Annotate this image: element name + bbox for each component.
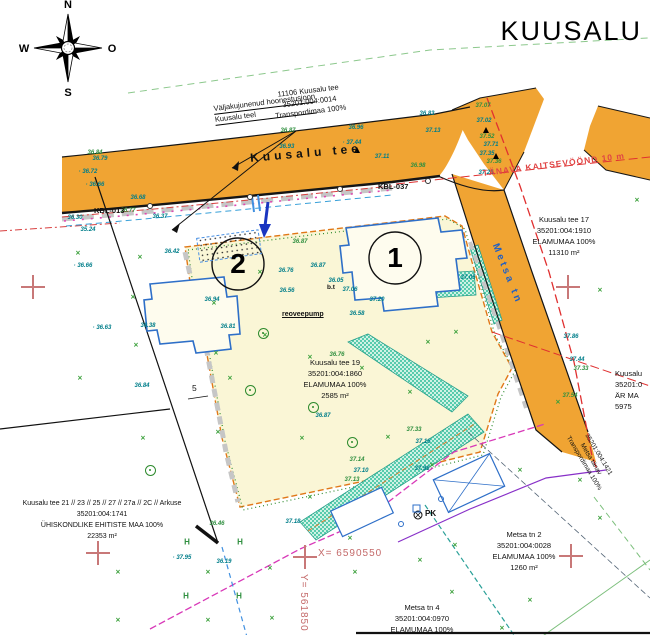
pole-icon <box>247 194 253 200</box>
spot-height: 36.96 <box>348 125 363 131</box>
dim5-line <box>188 396 208 399</box>
green-boundary-1 <box>594 497 650 570</box>
grid-cross <box>86 541 110 565</box>
parcel-label-metsa-2: Metsa tn 2 35201:004:0028 ELAMUMAA 100% … <box>464 529 584 573</box>
spot-height: 36.83 <box>419 111 434 117</box>
spot-height: 37.14 <box>349 457 364 463</box>
compass-rose: N S W O <box>19 0 117 99</box>
spot-height: 37.11 <box>375 154 390 160</box>
parcel-line: 1260 m² <box>464 562 584 573</box>
spot-height: · 36.63 <box>93 325 112 331</box>
site-plan-kuusalu: N S W O 36.7936.84· 36.72· 36.6636.6836.… <box>0 0 650 635</box>
spot-height: 37.98 <box>414 466 429 472</box>
grass-mark: × <box>500 624 505 633</box>
spot-height: 37.20 <box>369 297 384 303</box>
spot-height: 37.33 <box>406 427 421 433</box>
east-road-area <box>584 106 650 180</box>
grass-mark: × <box>134 341 139 350</box>
spot-height: 35.24 <box>80 227 95 233</box>
grass-mark: × <box>78 374 83 383</box>
parcel-line: 2585 m² <box>276 390 394 401</box>
spot-height: · 36.66 <box>74 263 93 269</box>
spot-height: 36.30 <box>67 215 82 221</box>
grass-mark: × <box>418 556 423 565</box>
y-coordinate-label: Y= 561850 <box>298 574 309 632</box>
spot-height: · 37.95 <box>173 555 192 561</box>
parcel-label-kuusalu-17: Kuusalu tee 17 35201:004:1910 ELAMUMAA 1… <box>505 214 623 258</box>
pole-icon <box>337 186 343 192</box>
spot-height: 36.87 <box>280 128 295 134</box>
grass-mark: × <box>270 614 275 623</box>
parcel-label-kuusalu-21: Kuusalu tee 21 // 23 // 25 // 27 // 27a … <box>8 498 196 542</box>
parcel-line: Kuusalu tee 17 <box>505 214 623 225</box>
grass-mark: × <box>518 466 523 475</box>
spot-height: 37.52 <box>479 134 494 140</box>
parcel-line: 35201:004:1860 <box>276 368 394 379</box>
grass-mark: × <box>300 434 305 443</box>
spot-height: 37.33 <box>573 366 588 372</box>
spot-height: 36.87 <box>292 239 307 245</box>
page-title: KUUSALU <box>500 16 642 47</box>
grass-mark: × <box>76 249 81 258</box>
spot-height: 37.86 <box>563 334 578 340</box>
parcel-line: ELAMUMAA 100% <box>505 236 623 247</box>
boundary-bl <box>0 409 170 429</box>
boundary-se <box>468 432 650 598</box>
grass-mark: × <box>258 268 263 277</box>
grass-mark: × <box>450 588 455 597</box>
spot-height: 36.46 <box>209 521 224 527</box>
spot-height: 36.81 <box>220 324 235 330</box>
spot-height: 36.56 <box>279 288 294 294</box>
parcel-label-arimaa: Kuusalu 35201:0 ÄR MA 5975 <box>615 368 650 412</box>
spot-height: 36.87 <box>310 263 325 269</box>
spot-height: 36.68 <box>130 195 145 201</box>
grass-mark: × <box>578 476 583 485</box>
tree-icon <box>308 402 319 413</box>
grass-mark: × <box>426 338 431 347</box>
parcel-line: ÜHISKONDLIKE EHITISTE MAA 100% <box>8 520 196 531</box>
grass-mark: × <box>528 596 533 605</box>
spot-height: 37.07 <box>475 103 490 109</box>
bus-arrow-head <box>259 224 271 238</box>
grass-mark: × <box>386 433 391 442</box>
leader-arrow-1 <box>172 223 180 233</box>
tree-icon <box>347 437 358 448</box>
plot-number-1: 1 <box>382 242 408 274</box>
spot-height: 36.84 <box>87 150 102 156</box>
spot-height: 37.06 <box>342 287 357 293</box>
grid-cross <box>556 275 580 299</box>
tree-icon <box>245 385 256 396</box>
spot-height: 37.18 <box>285 519 300 525</box>
plot-number-2: 2 <box>225 248 251 280</box>
parcel-line: 5975 <box>615 401 650 412</box>
parcel-line: Metsa tn 2 <box>464 529 584 540</box>
parcel-line: 35201:0 <box>615 379 650 390</box>
spot-height: 37.02 <box>476 118 491 124</box>
grass-mark: × <box>598 514 603 523</box>
pole-icon <box>147 203 153 209</box>
grass-mark: × <box>348 534 353 543</box>
parcel-line: Kuusalu tee 19 <box>276 357 394 368</box>
parcel-line: ÄR MA <box>615 390 650 401</box>
spot-height: 36.87 <box>315 413 330 419</box>
well-1 <box>399 522 404 527</box>
tree-icon <box>145 465 156 476</box>
grid-cross <box>293 545 317 569</box>
spot-height: 36.42 <box>164 249 179 255</box>
spot-height: 37.13 <box>425 128 440 134</box>
sign-triangle-icon <box>493 153 499 159</box>
grass-mark: × <box>408 388 413 397</box>
grass-mark: × <box>138 253 143 262</box>
spot-height: 36.38 <box>140 323 155 329</box>
spot-height: 37.16 <box>415 439 430 445</box>
grass-mark: × <box>430 461 435 470</box>
hydrant-mark: H <box>237 538 243 547</box>
grass-mark: × <box>206 568 211 577</box>
kbl-037-label: KBL-037 <box>378 182 408 191</box>
fence-line <box>95 177 218 543</box>
spot-height: 37.05 <box>460 275 475 281</box>
kbl-013-label: KBL-013 <box>94 206 124 215</box>
spot-height: 36.84 <box>134 383 149 389</box>
spot-height: 36.58 <box>349 311 364 317</box>
grass-mark: × <box>454 328 459 337</box>
parcel-line: 22353 m² <box>8 531 196 542</box>
grass-mark: × <box>635 196 640 205</box>
spot-height: 37.71 <box>483 142 498 148</box>
parcel-line: ELAMUMAA 100% <box>464 551 584 562</box>
parcel-line: 11310 m² <box>505 247 623 258</box>
parcel-line: ELAMUMAA 100% <box>276 379 394 390</box>
spot-height: 37.13 <box>344 477 359 483</box>
tree-icon <box>258 328 269 339</box>
spot-height: 36.76 <box>278 268 293 274</box>
planned-building-2 <box>144 277 240 353</box>
grass-mark: × <box>116 616 121 625</box>
grass-mark: × <box>131 293 136 302</box>
spot-height: 37.36 <box>486 159 501 165</box>
bt-label: b.t <box>327 284 335 291</box>
spot-height: · 36.72 <box>79 169 98 175</box>
parcel-line: 35201:004:0028 <box>464 540 584 551</box>
grass-mark: × <box>214 349 219 358</box>
spot-height: 37.54 <box>562 393 577 399</box>
grass-mark: × <box>308 493 313 502</box>
parcel-line: Kuusalu <box>615 368 650 379</box>
spot-height: 37.44 <box>569 357 584 363</box>
grass-mark: × <box>141 434 146 443</box>
parcel-line: Kuusalu tee 21 // 23 // 25 // 27 // 27a … <box>8 498 196 509</box>
grass-mark: × <box>268 564 273 573</box>
grass-mark: × <box>353 568 358 577</box>
grass-mark: × <box>228 374 233 383</box>
dimension-5-label: 5 <box>192 383 197 393</box>
parcel-line: 35201:004:1741 <box>8 509 196 520</box>
parcel-line: Metsa tn 4 <box>362 602 482 613</box>
compass-s-label: S <box>64 87 71 99</box>
pk-label: PK <box>425 509 436 518</box>
sign-triangle-icon <box>483 127 489 133</box>
grass-mark: × <box>216 428 221 437</box>
spot-height: 36.19 <box>216 559 231 565</box>
compass-w-label: W <box>19 43 30 55</box>
pole-icon <box>425 178 431 184</box>
spot-height: 36.98 <box>410 163 425 169</box>
grass-mark: × <box>206 616 211 625</box>
spot-height: 36.79 <box>92 156 107 162</box>
parcel-line: ELAMUMAA 100% <box>362 624 482 635</box>
grass-mark: × <box>453 541 458 550</box>
hydrant-mark: H <box>183 592 189 601</box>
parcel-label-metsa-4: Metsa tn 4 35201:004:0970 ELAMUMAA 100% <box>362 602 482 635</box>
hydrant-mark: H <box>236 592 242 601</box>
x-coordinate-label: X= 6590550 <box>318 548 382 559</box>
spot-height: 36.37 <box>152 214 167 220</box>
parcel-line: 35201:004:0970 <box>362 613 482 624</box>
grid-cross <box>21 275 45 299</box>
red-survey-left <box>0 223 120 231</box>
parcel-line: 35201:004:1910 <box>505 225 623 236</box>
parcel-label-kuusalu-19: Kuusalu tee 19 35201:004:1860 ELAMUMAA 1… <box>276 357 394 401</box>
grass-mark: × <box>556 398 561 407</box>
sewage-pump-label: reoveepump <box>282 311 324 318</box>
crosswalk-marks <box>252 195 260 212</box>
compass-hub <box>62 42 75 55</box>
grass-mark: × <box>598 286 603 295</box>
bus-arrow <box>265 202 268 226</box>
grass-mark: × <box>212 299 217 308</box>
spot-height: 37.10 <box>353 468 368 474</box>
compass-n-label: N <box>64 0 72 11</box>
grass-mark: × <box>116 568 121 577</box>
spot-height: · 36.66 <box>86 182 105 188</box>
compass-e-label: O <box>108 43 117 55</box>
